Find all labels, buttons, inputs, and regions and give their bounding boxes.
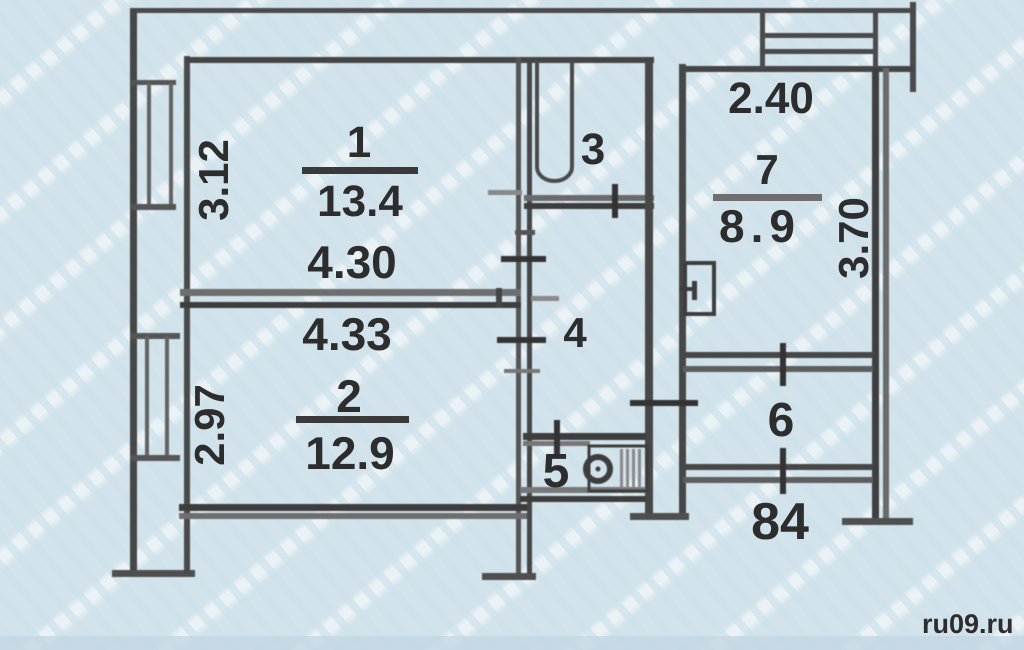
svg-text:6: 6: [768, 394, 795, 447]
svg-text:ru09.ru: ru09.ru: [922, 609, 1014, 639]
svg-text:3.12: 3.12: [190, 139, 237, 221]
svg-text:84: 84: [751, 493, 809, 551]
svg-text:4.33: 4.33: [302, 308, 392, 360]
svg-text:3: 3: [581, 125, 605, 174]
svg-text:5: 5: [543, 445, 570, 498]
svg-text:1: 1: [347, 118, 371, 167]
svg-text:7: 7: [755, 146, 778, 193]
svg-text:8.9: 8.9: [719, 200, 801, 252]
svg-text:2: 2: [336, 370, 362, 422]
svg-text:12.9: 12.9: [305, 427, 395, 479]
svg-text:2.40: 2.40: [728, 74, 814, 123]
svg-text:13.4: 13.4: [317, 177, 403, 226]
svg-text:4.30: 4.30: [307, 236, 397, 288]
svg-text:4: 4: [563, 309, 587, 356]
svg-text:3.70: 3.70: [830, 197, 877, 279]
svg-text:2.97: 2.97: [186, 384, 233, 466]
